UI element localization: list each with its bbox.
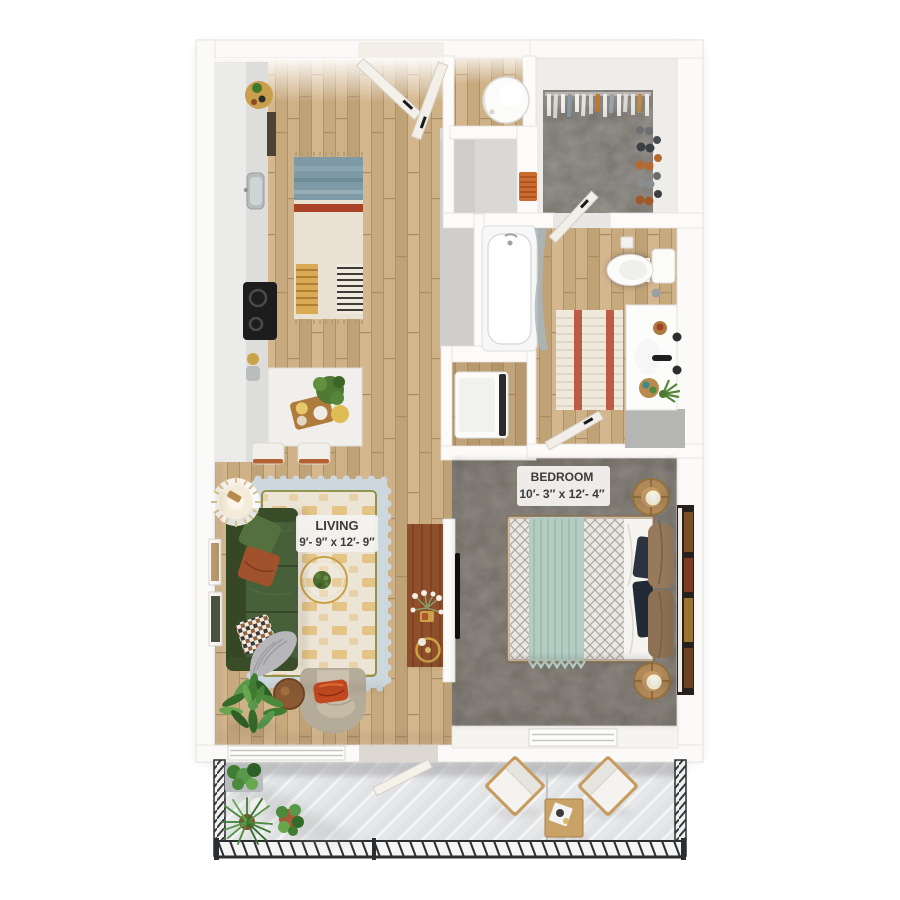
svg-text:LIVING: LIVING <box>315 518 358 533</box>
svg-text:9′- 9″ x 12′- 9″: 9′- 9″ x 12′- 9″ <box>299 537 375 549</box>
svg-text:BEDROOM: BEDROOM <box>531 470 594 484</box>
svg-text:10′- 3″ x 12′- 4″: 10′- 3″ x 12′- 4″ <box>519 487 605 501</box>
